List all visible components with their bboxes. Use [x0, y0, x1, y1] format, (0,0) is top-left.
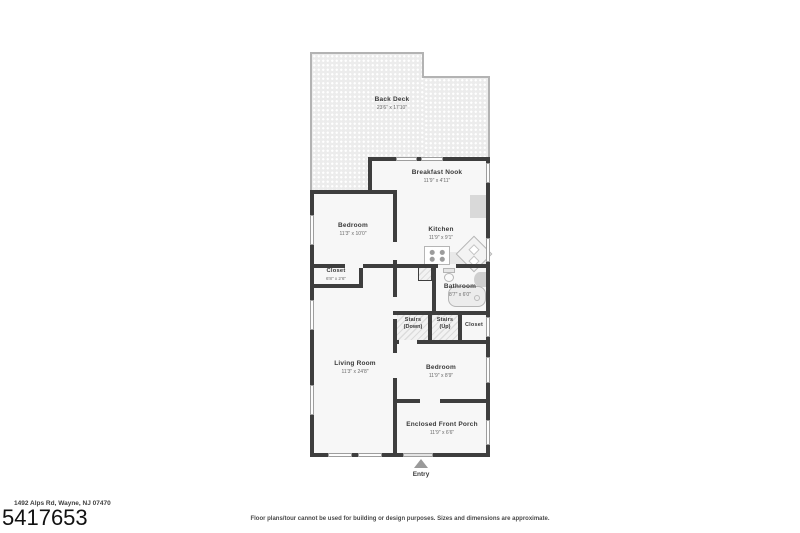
- wall: [428, 315, 432, 340]
- house-floor: [310, 157, 490, 457]
- window: [310, 385, 314, 415]
- room-label-bedroom-1: Bedroom 11'3" x 10'0": [338, 222, 368, 237]
- wall: [368, 157, 372, 194]
- wall: [393, 311, 490, 315]
- room-label-bathroom: Bathroom 8'7" x 6'0": [444, 283, 476, 298]
- sink-basin: [468, 244, 479, 255]
- window: [486, 317, 490, 337]
- wall: [440, 399, 490, 403]
- wall: [393, 399, 420, 403]
- wall: [432, 268, 436, 315]
- back-deck-area-lower: [310, 157, 370, 192]
- entry-label: Entry: [413, 471, 430, 478]
- window: [486, 420, 490, 445]
- wall: [393, 340, 399, 344]
- wall: [393, 319, 397, 353]
- window: [486, 163, 490, 183]
- wall: [393, 268, 397, 297]
- room-label-stairs-down: Stairs (Down): [404, 317, 423, 331]
- wall: [486, 157, 490, 457]
- kitchen-counter: [470, 195, 486, 218]
- room-label-stairs-up: Stairs (Up): [437, 317, 454, 331]
- wall: [393, 190, 397, 242]
- stove-icon: [424, 246, 450, 265]
- room-label-closet-hall: Closet: [465, 322, 483, 329]
- window: [358, 453, 382, 457]
- wall: [393, 378, 397, 453]
- wall: [310, 190, 397, 194]
- window: [396, 157, 417, 161]
- room-label-kitchen: Kitchen 11'9" x 9'1": [428, 226, 453, 241]
- window: [310, 215, 314, 245]
- wall: [310, 284, 363, 288]
- window: [486, 357, 490, 383]
- window: [310, 300, 314, 330]
- deck-notch-edge: [422, 52, 424, 78]
- back-deck-area-right: [424, 76, 490, 157]
- wall: [417, 340, 490, 344]
- disclaimer-text: Floor plans/tour cannot be used for buil…: [0, 516, 800, 522]
- room-label-bedroom-2: Bedroom 11'9" x 8'9": [426, 364, 456, 379]
- wall: [397, 264, 432, 268]
- room-label-breakfast-nook: Breakfast Nook 11'9" x 4'11": [412, 169, 462, 184]
- wall: [456, 264, 490, 268]
- room-label-closet-1: Closet 6'8" x 2'6": [326, 268, 346, 282]
- window: [486, 238, 490, 262]
- floor-plan-page: Back Deck 23'6" x 17'10" Breakfast Nook …: [0, 0, 800, 533]
- wall: [363, 264, 397, 268]
- entry-door-opening: [403, 453, 433, 457]
- wall: [458, 315, 462, 340]
- toilet-icon: [444, 273, 454, 282]
- room-label-back-deck: Back Deck 23'6" x 17'10": [375, 96, 410, 111]
- window: [328, 453, 352, 457]
- entry-arrow-icon: [414, 459, 428, 468]
- hatch-box: [418, 267, 432, 281]
- room-label-front-porch: Enclosed Front Porch 11'9" x 6'6": [406, 421, 478, 436]
- window: [421, 157, 443, 161]
- room-label-living-room: Living Room 11'3" x 24'8": [334, 360, 376, 375]
